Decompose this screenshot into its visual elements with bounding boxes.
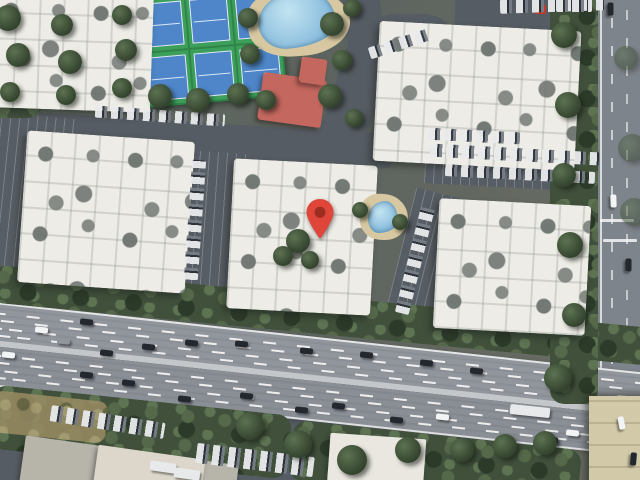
vehicle [2, 351, 16, 358]
overpass-bridge [589, 396, 640, 480]
tree [557, 232, 583, 258]
vehicle [360, 351, 374, 358]
map-marker-pin[interactable] [305, 198, 335, 245]
vehicle [630, 452, 637, 465]
tree [337, 445, 367, 475]
vehicle [122, 379, 136, 386]
tree [318, 84, 342, 108]
tree [115, 39, 137, 61]
tennis-court-surface [188, 0, 230, 44]
tree [256, 90, 276, 110]
tree [555, 92, 581, 118]
vehicle [80, 318, 94, 325]
tree [562, 303, 586, 327]
vehicle [295, 406, 309, 413]
tree [56, 85, 76, 105]
tree [320, 12, 344, 36]
tree [227, 83, 249, 105]
tree [533, 431, 557, 455]
vehicle [142, 343, 156, 350]
vehicle [626, 259, 632, 272]
tree [112, 5, 132, 25]
satellite-map-canvas[interactable] [0, 0, 640, 480]
vehicle [35, 326, 49, 333]
vehicle [436, 413, 450, 420]
vehicle [390, 416, 404, 423]
tree [58, 50, 82, 74]
vehicle [470, 367, 484, 374]
tree [238, 8, 258, 28]
tree [240, 44, 260, 64]
tree [6, 43, 30, 67]
tree [284, 430, 312, 458]
tree [301, 251, 319, 269]
vehicle [420, 359, 434, 366]
tree [552, 163, 576, 187]
vehicle [300, 347, 314, 354]
tree [345, 109, 363, 127]
tree [236, 412, 264, 440]
pin-icon [305, 198, 335, 240]
tree [273, 246, 293, 266]
tree [148, 84, 172, 108]
tree [618, 134, 640, 162]
tree [332, 50, 352, 70]
tree [51, 14, 73, 36]
tree [395, 437, 421, 463]
vehicle [608, 3, 614, 16]
tree [614, 46, 638, 70]
vehicle [566, 429, 580, 436]
tennis-court [185, 0, 234, 48]
vehicle [610, 194, 616, 207]
vehicle [100, 349, 114, 356]
vehicle [240, 392, 254, 399]
apartment-cluster-west [17, 130, 195, 293]
clubhouse-wing [298, 56, 327, 85]
tree [544, 364, 572, 392]
tree [112, 78, 132, 98]
vehicle [332, 402, 346, 409]
tree [620, 198, 640, 226]
vehicle [57, 337, 71, 344]
stop-bar [603, 239, 637, 242]
vehicle [185, 339, 199, 346]
vehicle [178, 395, 192, 402]
vehicle [80, 371, 94, 378]
tree [186, 88, 210, 112]
parked-cars [556, 0, 592, 12]
vehicle [235, 340, 249, 347]
tree [493, 434, 517, 458]
tree [450, 438, 474, 462]
tree [0, 82, 20, 102]
tree [352, 202, 368, 218]
tree [551, 22, 577, 48]
tree [392, 214, 408, 230]
